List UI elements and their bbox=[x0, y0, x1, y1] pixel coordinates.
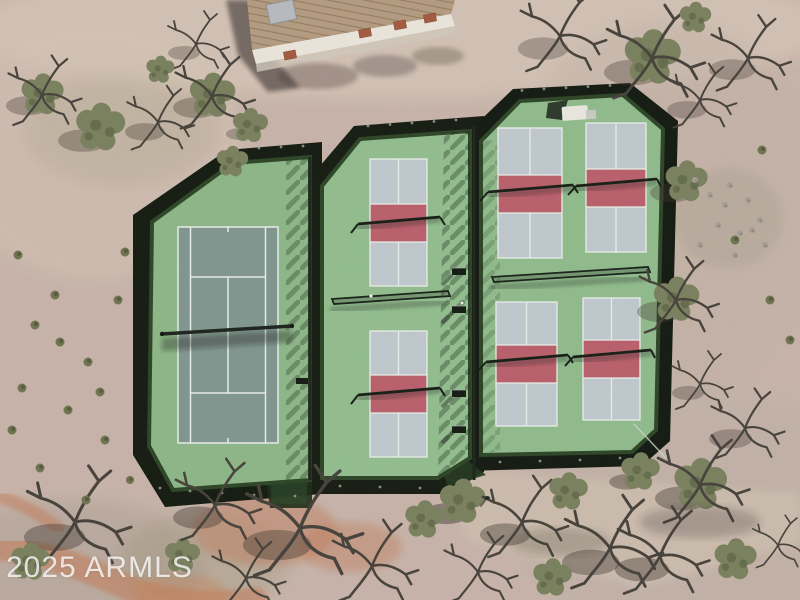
aerial-photo: 2025 ARMLS bbox=[0, 0, 800, 600]
photo-grain bbox=[0, 0, 800, 600]
watermark-text: 2025 ARMLS bbox=[6, 551, 193, 584]
scene-canvas bbox=[0, 0, 800, 600]
watermark: 2025 ARMLS bbox=[6, 551, 193, 585]
